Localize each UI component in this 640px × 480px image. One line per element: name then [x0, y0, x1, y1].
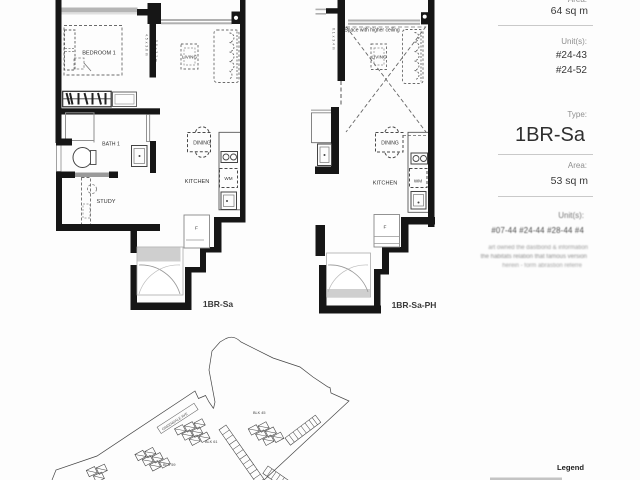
svg-text:LIVING: LIVING — [371, 55, 386, 60]
svg-text:F: F — [195, 226, 198, 232]
svg-text:BLK 59: BLK 59 — [163, 463, 175, 467]
svg-text:BLK 61: BLK 61 — [205, 440, 217, 444]
svg-text:BLK 45: BLK 45 — [253, 411, 265, 415]
svg-text:DINING: DINING — [381, 141, 399, 147]
svg-text:STUDY: STUDY — [97, 199, 116, 205]
svg-text:F: F — [384, 225, 387, 231]
svg-text:WM: WM — [414, 179, 422, 184]
svg-text:Legend: Legend — [557, 463, 584, 472]
svg-text:1BR-Sa: 1BR-Sa — [203, 299, 234, 309]
svg-text:4.5 x 3.0 m: 4.5 x 3.0 m — [145, 34, 149, 56]
svg-text:1BR-Sa-PH: 1BR-Sa-PH — [392, 300, 437, 310]
svg-text:WM: WM — [224, 176, 232, 181]
svg-text:BEDROOM 1: BEDROOM 1 — [82, 51, 116, 57]
svg-text:Space with higher ceiling: Space with higher ceiling — [344, 28, 400, 34]
svg-text:BATH 1: BATH 1 — [102, 142, 120, 148]
svg-text:KITCHEN: KITCHEN — [185, 179, 210, 185]
svg-text:6.1 x 3.4 m: 6.1 x 3.4 m — [332, 28, 336, 50]
svg-text:KITCHEN: KITCHEN — [373, 181, 398, 187]
svg-text:LIVING: LIVING — [182, 55, 197, 60]
svg-text:DINING: DINING — [193, 141, 211, 147]
